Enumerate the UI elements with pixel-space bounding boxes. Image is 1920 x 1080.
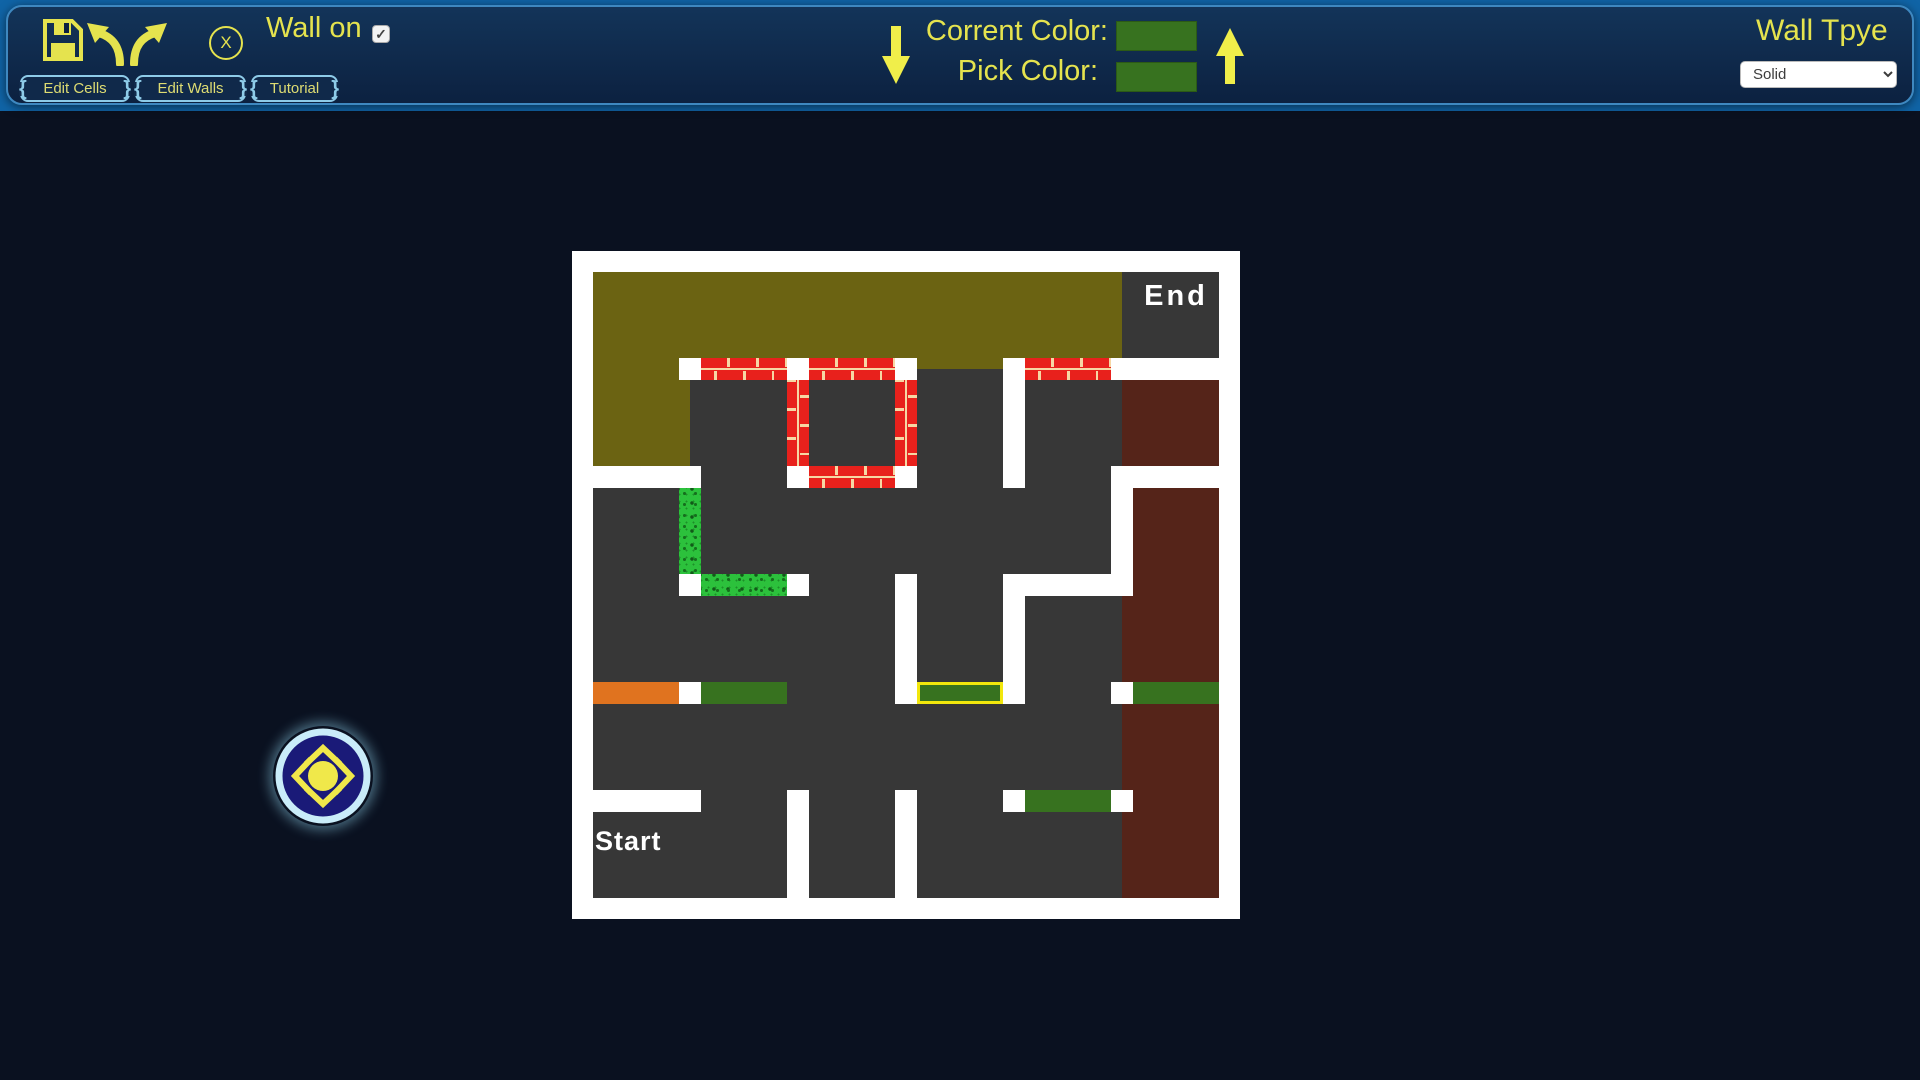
maze-vwall-0-0[interactable]	[690, 272, 701, 358]
maze-cell-3-5[interactable]	[1133, 596, 1219, 682]
undo-arrow-icon	[86, 54, 126, 69]
maze-hwall-3-4[interactable]	[1025, 682, 1111, 693]
dpad-compass-icon	[273, 814, 373, 829]
maze-vwall-4-1[interactable]	[798, 704, 809, 790]
maze-hwall-3-5[interactable]	[1133, 682, 1219, 704]
maze-hwall-4-4[interactable]	[1025, 790, 1111, 812]
wall-on-label: Wall on	[266, 12, 362, 45]
maze-cell-3-3[interactable]	[917, 596, 1003, 682]
maze-hwall-4-2[interactable]	[809, 790, 895, 801]
maze-cell-1-2[interactable]	[809, 380, 895, 466]
maze-vwall-2-3[interactable]	[1014, 488, 1025, 574]
maze-hwall-4-5[interactable]	[1133, 790, 1219, 801]
maze-hwall-1-1[interactable]	[701, 466, 787, 477]
maze-vwall-1-1[interactable]	[787, 380, 809, 466]
pick-color-swatch[interactable]	[1116, 62, 1197, 92]
current-color-label: Corrent Color:	[898, 15, 1108, 48]
maze-cell-0-3[interactable]	[917, 272, 1003, 358]
maze-vwall-4-2[interactable]	[906, 704, 917, 790]
maze-hwall-3-2[interactable]	[809, 682, 895, 693]
maze-cell-5-3[interactable]	[917, 812, 1003, 898]
clear-button[interactable]: X	[209, 26, 243, 60]
maze-vwall-0-2[interactable]	[906, 272, 917, 358]
maze-hwall-2-3[interactable]	[917, 585, 1003, 596]
maze-cell-3-2[interactable]	[809, 596, 895, 682]
maze-hwall-2-2[interactable]	[809, 585, 895, 596]
maze-cell-1-1[interactable]	[701, 380, 787, 466]
tutorial-button[interactable]: Tutorial	[251, 75, 338, 102]
maze-vwall-4-2[interactable]	[895, 704, 906, 790]
maze-hwall-1-3[interactable]	[917, 466, 1003, 477]
maze-vwall-4-4[interactable]	[1111, 704, 1122, 790]
maze-vwall-5-3[interactable]	[1014, 812, 1025, 898]
redo-arrow-icon	[128, 54, 168, 69]
maze-hwall-1-4[interactable]	[1025, 466, 1111, 477]
maze-vwall-2-2[interactable]	[895, 488, 906, 574]
maze-hwall-2-5[interactable]	[1133, 574, 1219, 585]
maze-vwall-4-0[interactable]	[690, 704, 701, 790]
maze-vwall-2-3[interactable]	[1003, 488, 1014, 574]
maze-cell-0-1[interactable]	[701, 272, 787, 358]
maze-vwall-2-1[interactable]	[798, 488, 809, 574]
maze-hwall-0-0[interactable]	[593, 358, 679, 369]
maze-hwall-1-1[interactable]	[701, 477, 787, 488]
maze-hwall-1-3[interactable]	[917, 477, 1003, 488]
maze-cell-2-2[interactable]	[809, 488, 895, 574]
maze-vwall-1-2[interactable]	[895, 380, 917, 466]
maze-vwall-0-1[interactable]	[787, 272, 798, 358]
maze-cell-1-0[interactable]	[593, 380, 679, 466]
maze-vwall-3-0[interactable]	[679, 596, 690, 682]
maze-vwall-1-0[interactable]	[679, 380, 690, 466]
maze-cell-0-0[interactable]	[593, 272, 679, 358]
maze-hwall-2-0[interactable]	[593, 574, 679, 585]
maze-corner-3-1	[787, 682, 809, 704]
maze-cell-4-3[interactable]	[917, 704, 1003, 790]
maze-vwall-2-0[interactable]	[679, 488, 701, 574]
maze-cell-5-2[interactable]	[809, 812, 895, 898]
maze-cell-0-2[interactable]	[809, 272, 895, 358]
maze-vwall-0-1[interactable]	[798, 272, 809, 358]
maze-vwall-3-1[interactable]	[798, 596, 809, 682]
maze-vwall-3-0[interactable]	[690, 596, 701, 682]
maze-hwall-2-2[interactable]	[809, 574, 895, 585]
page: X Wall on ✓ Edit Cells Edit Walls Tutori…	[0, 0, 1920, 1080]
maze-vwall-5-0[interactable]	[690, 812, 701, 898]
maze-cell-4-4[interactable]	[1025, 704, 1111, 790]
wall-type-dropdown[interactable]: Solid	[1740, 61, 1897, 88]
maze-hwall-3-4[interactable]	[1025, 693, 1111, 704]
maze-hwall-3-0[interactable]	[593, 682, 679, 704]
edit-walls-button[interactable]: Edit Walls	[135, 75, 246, 102]
maze-cell-1-4[interactable]	[1025, 380, 1111, 466]
maze-cell-3-0[interactable]	[593, 596, 679, 682]
maze-vwall-1-4[interactable]	[1122, 380, 1133, 466]
save-button[interactable]	[40, 16, 86, 64]
maze-hwall-2-5[interactable]	[1133, 585, 1219, 596]
maze-vwall-0-4[interactable]	[1122, 272, 1133, 358]
pick-color-label: Pick Color:	[898, 55, 1098, 88]
maze-cell-4-1[interactable]	[701, 704, 787, 790]
maze-cell-4-2[interactable]	[809, 704, 895, 790]
maze-canvas[interactable]: EndStart	[572, 251, 1240, 919]
maze-hwall-2-0[interactable]	[593, 585, 679, 596]
maze-cell-3-4[interactable]	[1025, 596, 1111, 682]
maze-hwall-4-3[interactable]	[917, 790, 1003, 801]
maze-cell-5-4[interactable]	[1025, 812, 1111, 898]
edit-cells-button[interactable]: Edit Cells	[20, 75, 130, 102]
maze-hwall-0-2[interactable]	[809, 358, 895, 380]
maze-hwall-4-2[interactable]	[809, 801, 895, 812]
maze-cell-2-1[interactable]	[701, 488, 787, 574]
maze-cell-0-4[interactable]	[1025, 272, 1111, 358]
maze-hwall-0-1[interactable]	[701, 358, 787, 380]
maze-label-start: Start	[595, 826, 681, 857]
redo-button[interactable]	[128, 22, 168, 66]
maze-hwall-2-1[interactable]	[701, 574, 787, 596]
maze-hwall-4-1[interactable]	[701, 801, 787, 812]
topbar-background-strip: X Wall on ✓ Edit Cells Edit Walls Tutori…	[0, 0, 1920, 111]
maze-vwall-1-0[interactable]	[690, 380, 701, 466]
maze-cell-2-4[interactable]	[1025, 488, 1111, 574]
maze-hwall-0-0[interactable]	[593, 369, 679, 380]
arrow-up-icon	[1216, 26, 1244, 91]
maze-vwall-3-1[interactable]	[787, 596, 798, 682]
wall-type-label: Wall Tpye	[1756, 14, 1888, 48]
maze-hwall-3-1[interactable]	[701, 682, 787, 704]
wall-on-checkbox[interactable]: ✓	[372, 25, 390, 43]
maze-cell-1-3[interactable]	[917, 380, 1003, 466]
current-color-swatch[interactable]	[1116, 21, 1197, 51]
maze-vwall-0-0[interactable]	[679, 272, 690, 358]
maze-cell-3-1[interactable]	[701, 596, 787, 682]
maze-vwall-5-3[interactable]	[1003, 812, 1014, 898]
maze-hwall-0-3[interactable]	[917, 369, 1003, 380]
maze-vwall-0-3[interactable]	[1014, 272, 1025, 358]
maze-hwall-3-3-selected[interactable]	[917, 682, 1003, 704]
maze-hwall-4-1[interactable]	[701, 790, 787, 801]
maze-cell-2-0[interactable]	[593, 488, 679, 574]
maze-hwall-1-2[interactable]	[809, 466, 895, 488]
maze-vwall-0-4[interactable]	[1111, 272, 1122, 358]
maze-vwall-4-3[interactable]	[1014, 704, 1025, 790]
maze-vwall-4-1[interactable]	[787, 704, 798, 790]
maze-hwall-0-3[interactable]	[917, 358, 1003, 369]
maze-vwall-4-3[interactable]	[1003, 704, 1014, 790]
maze-vwall-4-0[interactable]	[679, 704, 690, 790]
maze-hwall-4-3[interactable]	[917, 801, 1003, 812]
maze-cell-4-0[interactable]	[593, 704, 679, 790]
maze-vwall-0-3[interactable]	[1003, 272, 1014, 358]
maze-cell-4-5[interactable]	[1133, 704, 1219, 790]
maze-vwall-5-4[interactable]	[1122, 812, 1133, 898]
dpad-compass-button[interactable]	[273, 726, 373, 826]
maze-cell-2-5[interactable]	[1133, 488, 1219, 574]
maze-vwall-2-2[interactable]	[906, 488, 917, 574]
maze-label-end: End	[1133, 280, 1219, 313]
maze-vwall-0-2[interactable]	[895, 272, 906, 358]
maze-cell-1-5[interactable]	[1133, 380, 1219, 466]
maze-vwall-2-1[interactable]	[787, 488, 798, 574]
maze-vwall-3-4[interactable]	[1111, 596, 1122, 682]
maze-hwall-1-4[interactable]	[1025, 477, 1111, 488]
maze-hwall-4-5[interactable]	[1133, 801, 1219, 812]
maze-hwall-3-2[interactable]	[809, 693, 895, 704]
maze-vwall-4-4[interactable]	[1122, 704, 1133, 790]
maze-hwall-0-4[interactable]	[1025, 358, 1111, 380]
undo-button[interactable]	[86, 22, 126, 66]
maze-vwall-5-4[interactable]	[1111, 812, 1122, 898]
maze-vwall-1-4[interactable]	[1111, 380, 1122, 466]
maze-cell-2-3[interactable]	[917, 488, 1003, 574]
maze-cell-5-1[interactable]	[701, 812, 787, 898]
maze-vwall-3-4[interactable]	[1122, 596, 1133, 682]
maze-cell-5-5[interactable]	[1133, 812, 1219, 898]
maze-hwall-2-3[interactable]	[917, 574, 1003, 585]
floppy-disk-icon	[40, 52, 86, 67]
